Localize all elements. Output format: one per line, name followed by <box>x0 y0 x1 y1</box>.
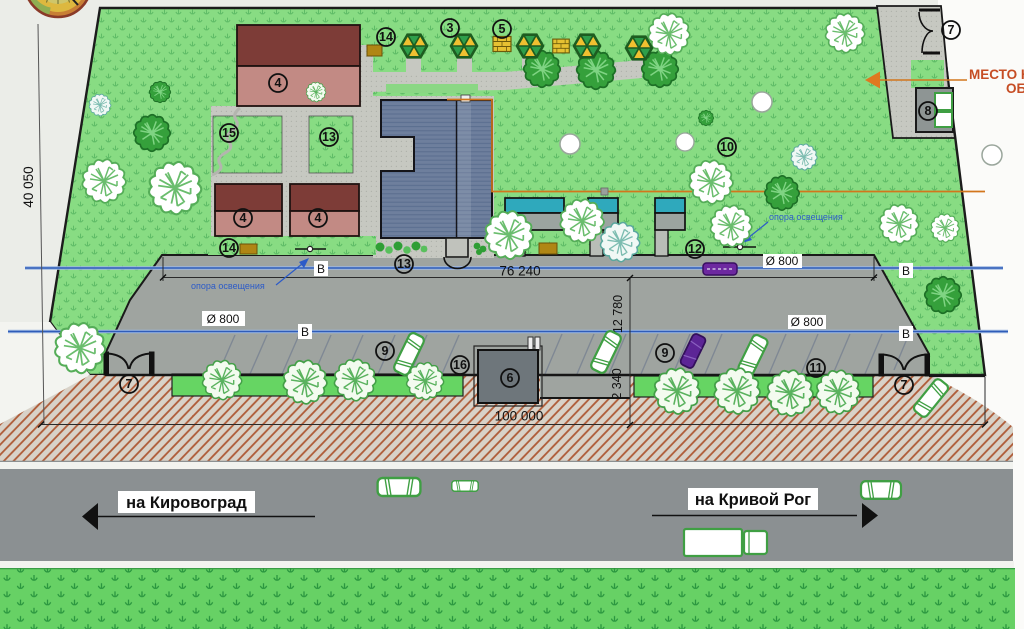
svg-text:7: 7 <box>126 377 133 391</box>
svg-text:4: 4 <box>275 76 282 90</box>
svg-text:4: 4 <box>240 211 247 225</box>
svg-text:12: 12 <box>688 242 702 256</box>
svg-text:ОБ: ОБ <box>1006 81 1024 96</box>
svg-text:7: 7 <box>901 378 908 392</box>
svg-text:4: 4 <box>315 211 322 225</box>
svg-text:100 000: 100 000 <box>495 409 544 424</box>
svg-text:B: B <box>902 264 910 278</box>
svg-text:8: 8 <box>925 104 932 118</box>
svg-text:Ø 800: Ø 800 <box>207 312 240 326</box>
svg-text:11: 11 <box>809 361 822 375</box>
svg-text:B: B <box>317 262 325 276</box>
svg-text:40 050: 40 050 <box>21 166 36 207</box>
svg-text:B: B <box>301 325 309 339</box>
svg-text:14: 14 <box>222 241 236 255</box>
svg-text:2 340: 2 340 <box>610 368 624 399</box>
svg-text:15: 15 <box>222 126 236 140</box>
svg-text:МЕСТО Н: МЕСТО Н <box>969 67 1024 82</box>
svg-text:14: 14 <box>379 30 393 44</box>
svg-text:опора освещения: опора освещения <box>191 281 265 291</box>
svg-text:9: 9 <box>662 346 669 360</box>
svg-text:13: 13 <box>322 130 336 144</box>
svg-text:опора освещения: опора освещения <box>769 212 843 222</box>
svg-text:5: 5 <box>499 22 506 36</box>
svg-text:13: 13 <box>397 257 411 271</box>
svg-text:B: B <box>902 327 910 341</box>
svg-text:6: 6 <box>507 371 514 385</box>
svg-text:на Кировоград: на Кировоград <box>126 494 247 512</box>
svg-text:3: 3 <box>447 21 454 35</box>
svg-text:9: 9 <box>382 344 389 358</box>
svg-text:76 240: 76 240 <box>499 264 540 279</box>
svg-text:на Кривой Рог: на Кривой Рог <box>695 491 811 509</box>
svg-text:12 780: 12 780 <box>611 295 625 333</box>
svg-text:10: 10 <box>720 140 734 154</box>
svg-text:Ø 800: Ø 800 <box>791 315 824 329</box>
svg-text:7: 7 <box>948 23 955 37</box>
svg-text:Ø 800: Ø 800 <box>766 254 799 268</box>
svg-text:16: 16 <box>453 358 467 372</box>
